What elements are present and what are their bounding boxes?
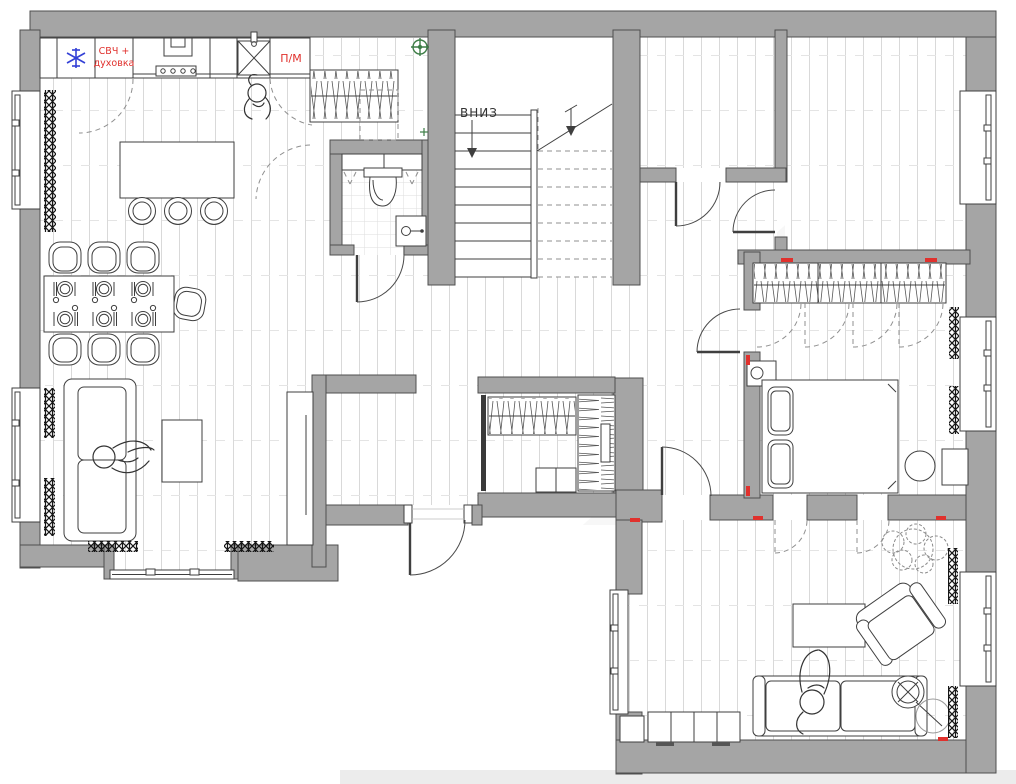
window-right-top	[960, 91, 996, 204]
outside-entry	[326, 525, 618, 770]
bedroom-wardrobe	[753, 263, 946, 303]
window-living-left	[610, 590, 628, 714]
window-right-living	[960, 572, 996, 686]
bed	[762, 380, 898, 493]
tv-unit-left	[287, 392, 313, 545]
wall-top	[30, 11, 996, 37]
window-left-top	[12, 91, 40, 209]
window-right-bedroom	[960, 317, 996, 431]
window-left-bottom	[12, 388, 40, 522]
closet-door-panel	[481, 395, 486, 491]
stair-stringer	[531, 110, 537, 278]
coffee-table-br	[793, 604, 865, 647]
window-bay-bottom	[110, 569, 234, 579]
label-microwave-oven-2: духовка	[94, 58, 135, 69]
kitchen-island	[120, 142, 234, 198]
label-dishwasher: П/М	[280, 52, 301, 65]
coffee-table-left	[162, 420, 202, 482]
label-microwave-oven-1: СВЧ +	[99, 46, 130, 57]
four-burner-icon	[156, 66, 196, 76]
washbasin	[396, 216, 426, 246]
pouf	[905, 451, 935, 481]
floor-plan: ВНИЗ СВЧ + духовка П/М	[0, 0, 1016, 784]
outside-area	[0, 582, 340, 784]
pillar	[620, 716, 644, 742]
tv-stand	[648, 712, 740, 746]
bedroom-bench	[942, 449, 968, 485]
bar-stools	[129, 198, 228, 225]
label-stairs-down: ВНИЗ	[460, 106, 498, 120]
